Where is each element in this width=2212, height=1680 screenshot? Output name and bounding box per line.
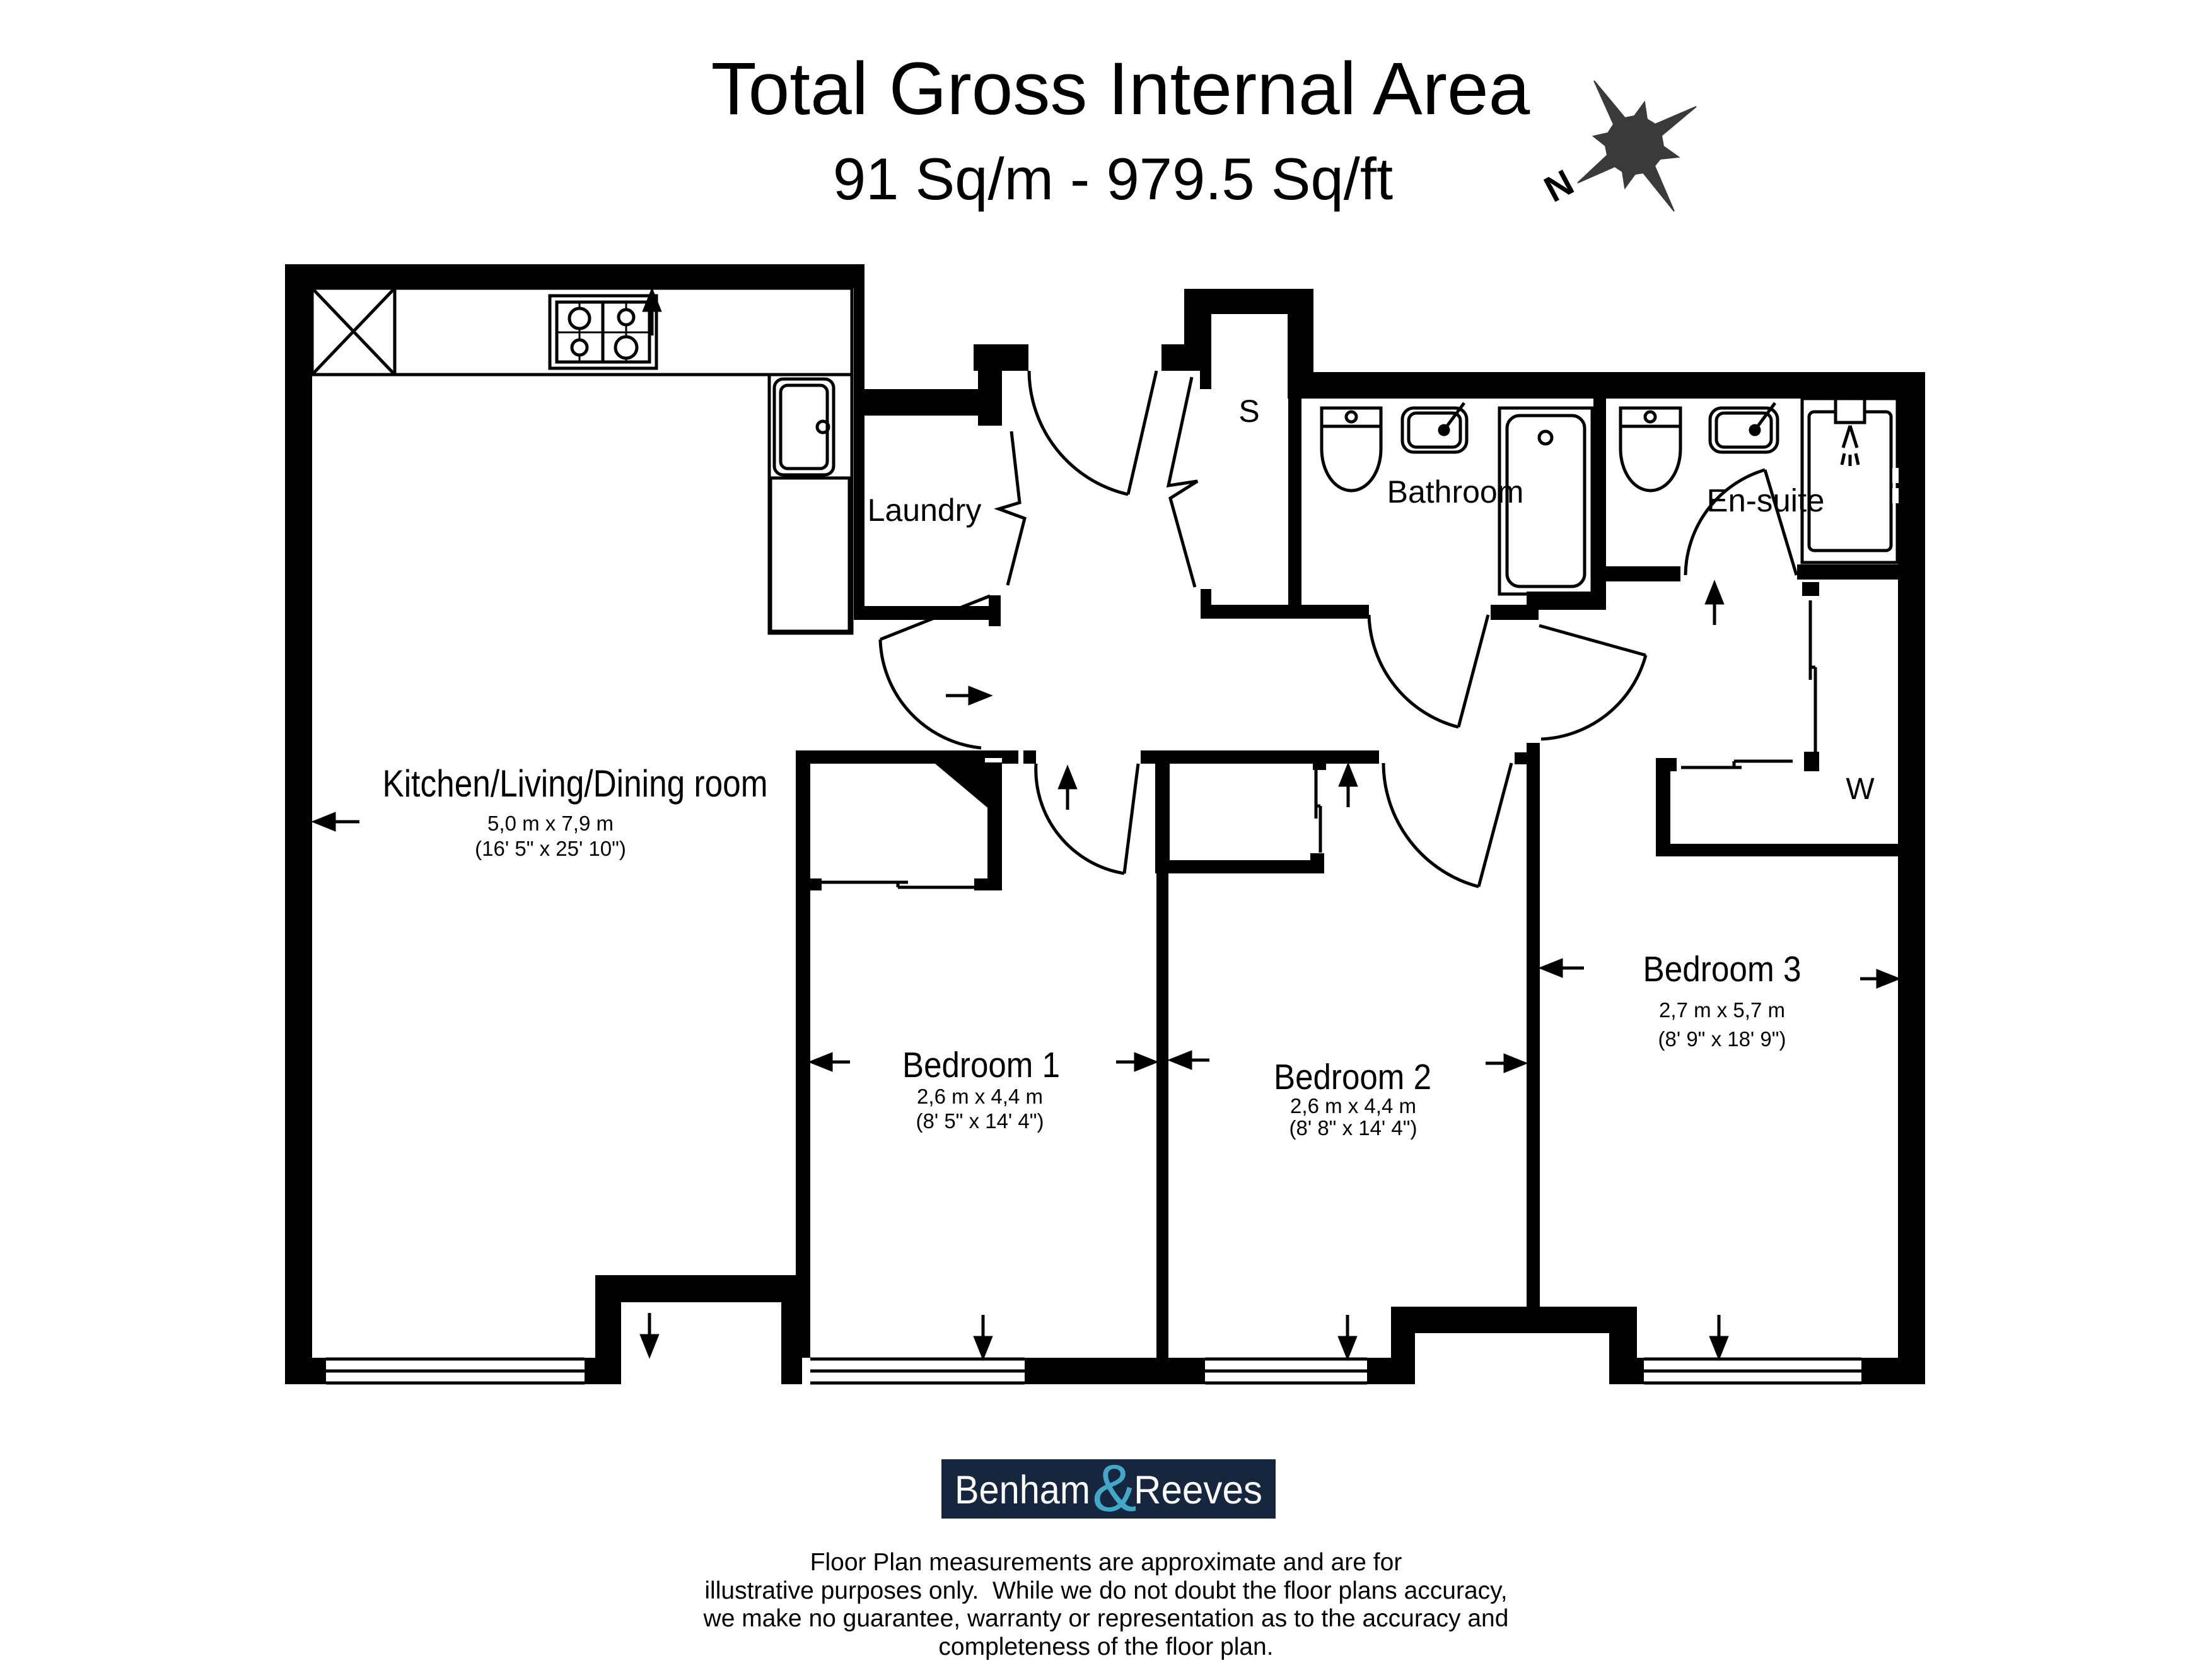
- svg-text:2,6 m x 4,4 m: 2,6 m x 4,4 m: [1290, 1094, 1416, 1117]
- svg-text:Kitchen/Living/Dining room: Kitchen/Living/Dining room: [383, 762, 768, 805]
- svg-text:Total Gross Internal Area: Total Gross Internal Area: [711, 47, 1530, 131]
- svg-text:Bedroom 1: Bedroom 1: [902, 1045, 1060, 1085]
- svg-text:Bedroom 2: Bedroom 2: [1274, 1057, 1431, 1097]
- svg-text:Laundry: Laundry: [868, 493, 982, 528]
- svg-text:(8' 5" x 14' 4"): (8' 5" x 14' 4"): [916, 1109, 1044, 1133]
- svg-text:5,0 m x 7,9 m: 5,0 m x 7,9 m: [487, 812, 614, 835]
- svg-text:we make no guarantee, warranty: we make no guarantee, warranty or repres…: [703, 1605, 1509, 1632]
- svg-text:(16' 5" x 25' 10"): (16' 5" x 25' 10"): [475, 837, 626, 860]
- svg-text:(8' 9" x 18' 9"): (8' 9" x 18' 9"): [1658, 1027, 1786, 1051]
- svg-text:(8' 8" x 14' 4"): (8' 8" x 14' 4"): [1289, 1116, 1417, 1140]
- svg-text:Bathroom: Bathroom: [1387, 474, 1524, 510]
- svg-text:completeness of the floor plan: completeness of the floor plan.: [938, 1633, 1273, 1660]
- svg-text:91 Sq/m - 979.5 Sq/ft: 91 Sq/m - 979.5 Sq/ft: [833, 146, 1393, 212]
- svg-text:Bedroom 3: Bedroom 3: [1643, 949, 1802, 989]
- svg-text:En-suite: En-suite: [1706, 482, 1824, 518]
- svg-text:Floor Plan measurements are ap: Floor Plan measurements are approximate …: [810, 1549, 1402, 1576]
- svg-text:illustrative purposes only. W: illustrative purposes only. While we do …: [704, 1577, 1507, 1604]
- svg-text:&: &: [1092, 1451, 1137, 1525]
- svg-text:2,6 m x 4,4 m: 2,6 m x 4,4 m: [917, 1085, 1043, 1108]
- svg-text:Benham: Benham: [955, 1468, 1090, 1512]
- svg-text:S: S: [1238, 394, 1259, 429]
- svg-text:W: W: [1846, 773, 1875, 806]
- svg-text:2,7 m x 5,7 m: 2,7 m x 5,7 m: [1659, 998, 1785, 1022]
- svg-text:Reeves: Reeves: [1134, 1468, 1262, 1512]
